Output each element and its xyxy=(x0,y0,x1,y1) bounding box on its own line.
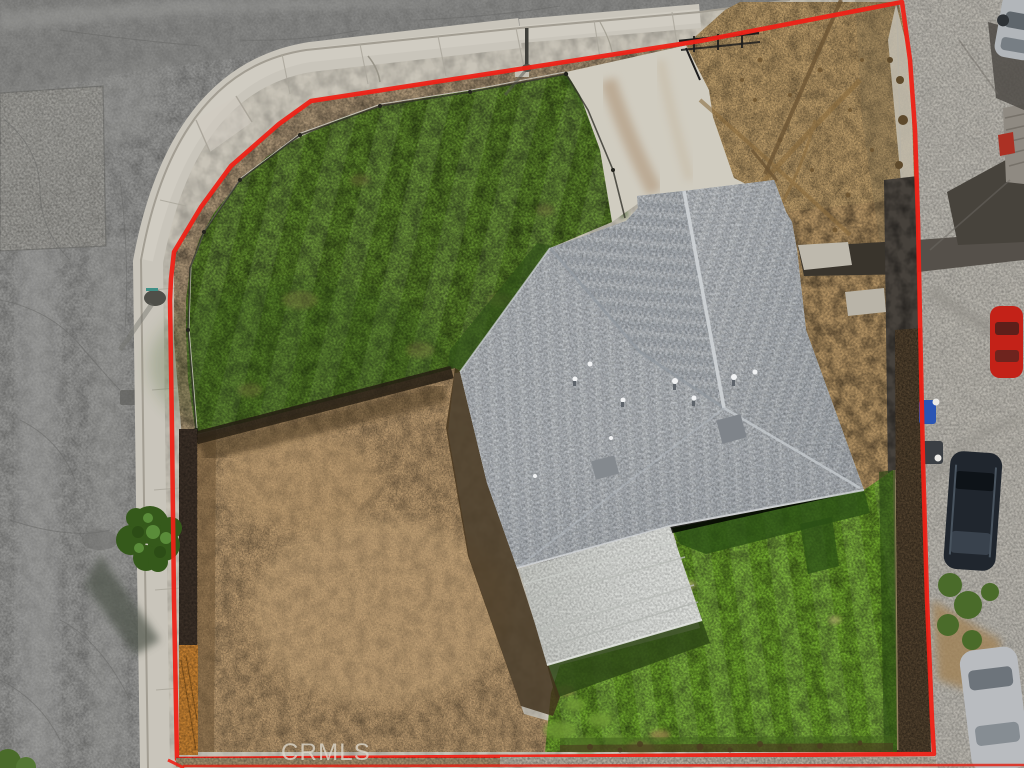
svg-text:CRMLS: CRMLS xyxy=(281,739,371,766)
